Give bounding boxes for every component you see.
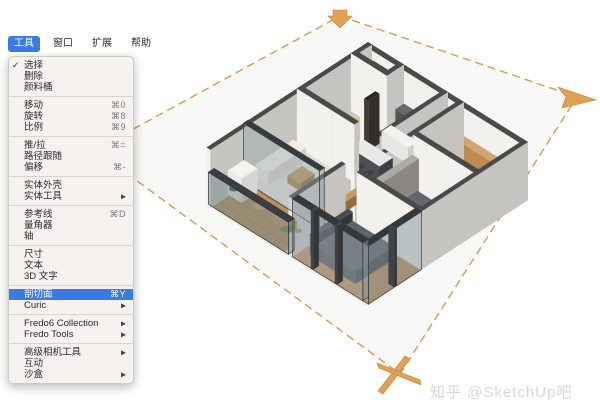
menu-item-label: 量角器: [24, 220, 53, 231]
menu-separator: [9, 205, 133, 206]
menu-item[interactable]: 实体工具▶: [9, 191, 133, 202]
menu-separator: [9, 343, 133, 344]
menu-item[interactable]: 尺寸: [9, 249, 133, 260]
menu-item-label: Fredo6 Collection: [24, 318, 98, 329]
menu-item[interactable]: 移动⌘0: [9, 100, 133, 111]
menu-item-label: 参考线: [24, 209, 53, 220]
menu-item[interactable]: 偏移⌘-: [9, 162, 133, 173]
menu-item-shortcut: ⌘=: [111, 140, 126, 151]
submenu-arrow-icon: ▶: [121, 370, 126, 381]
menu-item-shortcut: ⌘9: [111, 122, 126, 133]
menu-item-label: 旋转: [24, 111, 43, 122]
menubar-item-3[interactable]: 扩展: [86, 36, 118, 52]
menu-item[interactable]: Curic▶: [9, 300, 133, 311]
menu-item-label: 剖切面: [24, 289, 53, 300]
menu-item[interactable]: 参考线⌘D: [9, 209, 133, 220]
menu-item-label: 路径跟随: [24, 151, 62, 162]
wall-face: [337, 223, 343, 285]
menu-item[interactable]: 沙盒▶: [9, 369, 133, 380]
menubar: 工具窗口扩展帮助: [8, 35, 157, 53]
menu-item[interactable]: 量角器: [9, 220, 133, 231]
menu-item[interactable]: Fredo Tools▶: [9, 329, 133, 340]
menu-item[interactable]: 互动: [9, 358, 133, 369]
menu-item[interactable]: 轴: [9, 231, 133, 242]
menu-item-shortcut: ⌘Y: [110, 289, 126, 300]
menu-item-label: 推/拉: [24, 140, 46, 151]
menu-item[interactable]: Fredo6 Collection▶: [9, 318, 133, 329]
menu-item-shortcut: ⌘-: [113, 162, 126, 173]
submenu-arrow-icon: ▶: [121, 319, 126, 330]
menu-item[interactable]: 文本: [9, 260, 133, 271]
menu-item-label: Fredo Tools: [24, 329, 73, 340]
menu-item-label: 文本: [24, 260, 43, 271]
menu-item-label: 沙盒: [24, 369, 43, 380]
menu-item-label: 比例: [24, 122, 43, 133]
menu-separator: [9, 136, 133, 137]
menu-item-shortcut: ⌘D: [110, 209, 127, 220]
wall-face: [363, 239, 369, 301]
menubar-item-2[interactable]: 窗口: [47, 36, 79, 52]
menubar-item-1[interactable]: 工具: [8, 36, 40, 52]
menu-item[interactable]: 3D 文字: [9, 271, 133, 282]
submenu-arrow-icon: ▶: [121, 192, 126, 203]
wall-face: [288, 218, 294, 254]
menu-item-shortcut: ⌘8: [111, 111, 126, 122]
menu-item[interactable]: 比例⌘9: [9, 122, 133, 133]
menu-item-label: 轴: [24, 231, 34, 242]
menu-item[interactable]: 推/拉⌘=: [9, 140, 133, 151]
wall-face: [335, 225, 337, 285]
menu-item-label: 选择: [24, 60, 43, 71]
menu-item[interactable]: 剖切面⌘Y: [9, 289, 133, 300]
menu-separator: [9, 314, 133, 315]
menu-item-label: 互动: [24, 358, 43, 369]
wall-face: [368, 94, 379, 151]
submenu-arrow-icon: ▶: [121, 348, 126, 359]
tools-menu: 选择✓删除颜料桶移动⌘0旋转⌘8比例⌘9推/拉⌘=路径跟随偏移⌘-实体外壳实体工…: [8, 56, 134, 384]
watermark: 知乎 @SketchUp吧: [430, 381, 572, 402]
menu-item-label: 颜料桶: [24, 82, 53, 93]
menu-item-label: 3D 文字: [24, 271, 58, 282]
menu-item[interactable]: 路径跟随: [9, 151, 133, 162]
submenu-arrow-icon: ▶: [121, 330, 126, 341]
wall-face: [313, 208, 319, 270]
wall-face: [394, 228, 397, 288]
menu-item-label: 尺寸: [24, 249, 43, 260]
menu-item-label: 偏移: [24, 162, 43, 173]
submenu-arrow-icon: ▶: [121, 301, 126, 312]
menu-item[interactable]: 选择✓: [9, 60, 133, 71]
menu-separator: [9, 285, 133, 286]
menu-item[interactable]: 旋转⌘8: [9, 111, 133, 122]
menu-item-label: 移动: [24, 100, 43, 111]
checkmark-icon: ✓: [12, 60, 19, 71]
menu-item[interactable]: 实体外壳: [9, 180, 133, 191]
menu-item-label: Curic: [24, 300, 46, 311]
menu-item[interactable]: 高级相机工具▶: [9, 347, 133, 358]
wall-face: [311, 210, 313, 270]
menu-separator: [9, 245, 133, 246]
wall-face: [388, 226, 394, 288]
menu-item[interactable]: 删除: [9, 71, 133, 82]
menu-item-label: 高级相机工具: [24, 347, 81, 358]
menu-item-shortcut: ⌘0: [111, 100, 126, 111]
menu-separator: [9, 96, 133, 97]
menu-item-label: 实体外壳: [24, 180, 62, 191]
menubar-item-4[interactable]: 帮助: [125, 36, 157, 52]
menu-separator: [9, 176, 133, 177]
menu-item[interactable]: 颜料桶: [9, 82, 133, 93]
menu-item-label: 实体工具: [24, 191, 62, 202]
menu-item-label: 删除: [24, 71, 43, 82]
